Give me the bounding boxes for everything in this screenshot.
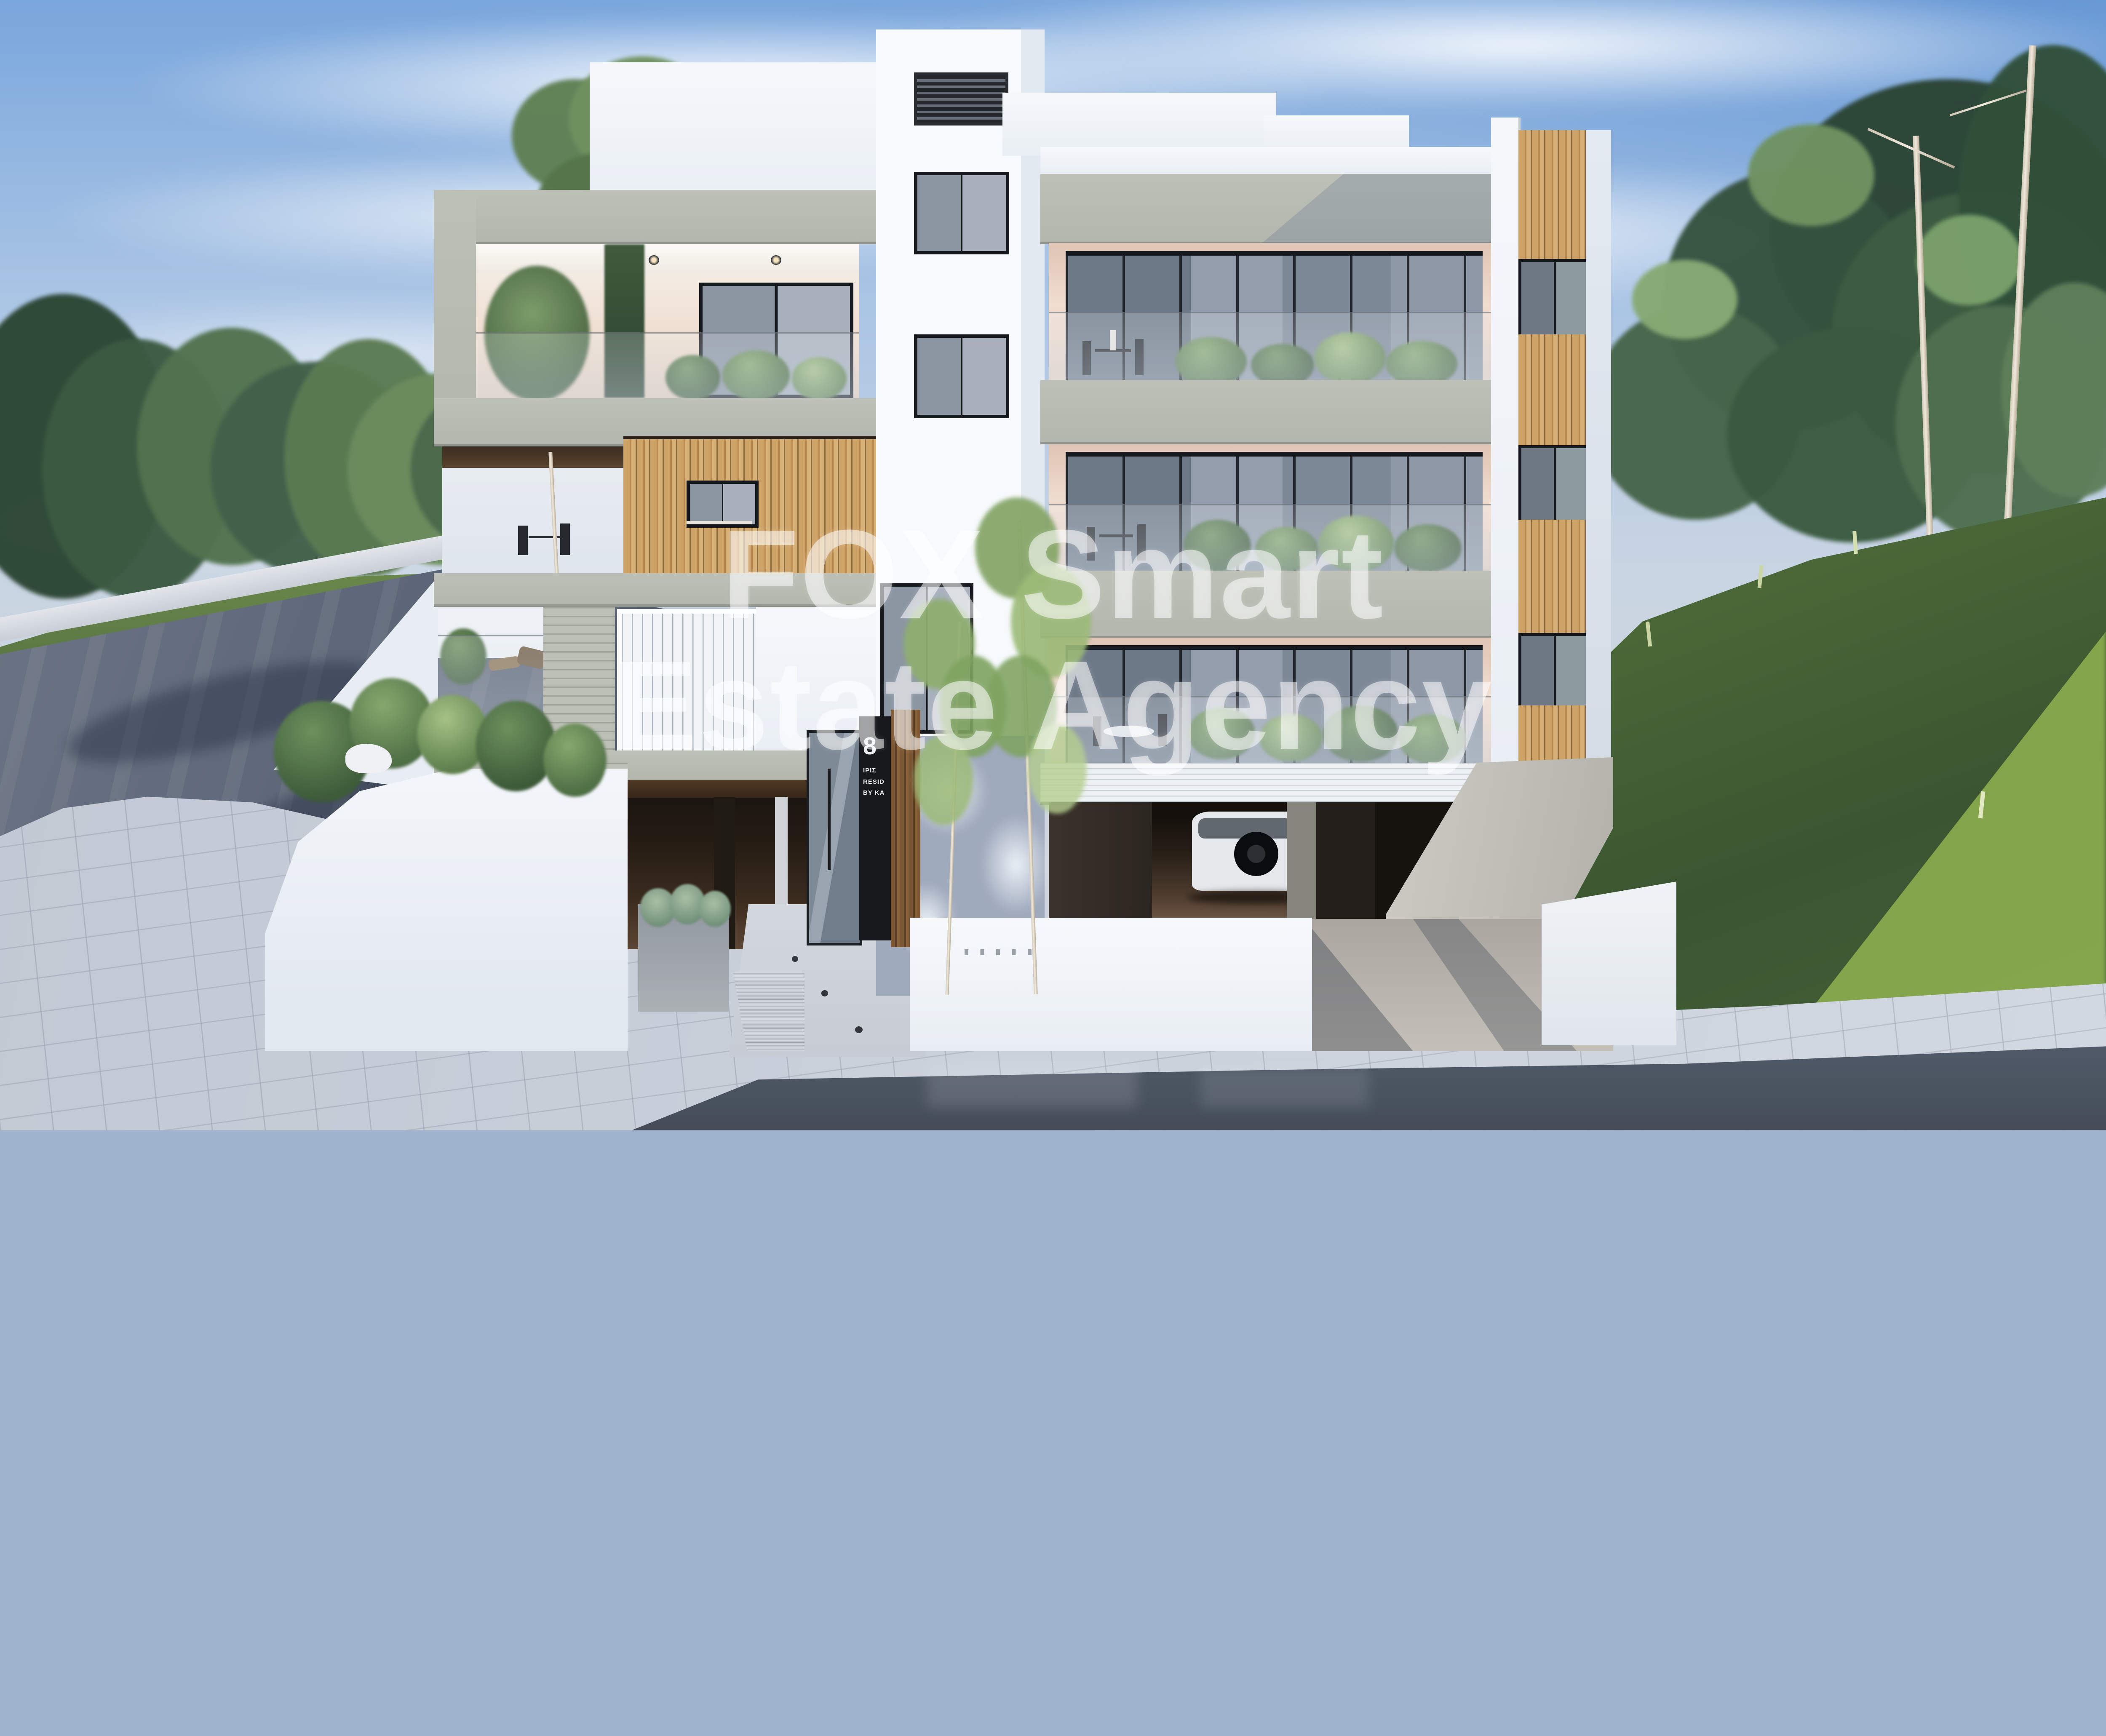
walkway-light: [792, 956, 798, 961]
front-planter-wall: [910, 918, 1312, 1051]
tower-window-mid: [914, 334, 1009, 418]
upper-white-volume: [590, 62, 897, 203]
reflection-on-road: [927, 1063, 1137, 1108]
white-retaining-wall: [1542, 881, 1676, 1045]
parapet-front: [1040, 147, 1499, 175]
silver-plant: [699, 891, 731, 927]
glass-balustrade: [1049, 312, 1493, 389]
watermark-line-2: Estate Agency: [0, 642, 2106, 768]
mid-terrace-soffit: [442, 446, 623, 468]
garage-column-concrete: [1287, 802, 1316, 919]
door-handle: [828, 769, 831, 871]
concrete-fascia-top: [434, 190, 880, 244]
wood-panel: [1518, 334, 1586, 445]
walkway-light: [855, 1026, 863, 1033]
wood-panel: [1518, 130, 1586, 259]
side-window: [1518, 259, 1592, 341]
garage-column-dark: [1316, 802, 1375, 919]
walkway-light: [821, 990, 828, 996]
watermark-line-1: FOX Smart: [0, 511, 2106, 637]
sign-line-3: BY KA: [863, 788, 885, 798]
light-dapple: [979, 814, 1053, 916]
sign-line-2: RESID: [863, 777, 885, 787]
tree-highlight: [1632, 260, 1737, 339]
tree-highlight: [1916, 215, 2022, 305]
reflection-on-road: [1200, 1068, 1369, 1108]
louver-vent: [914, 72, 1008, 126]
concrete-slab: [1040, 380, 1499, 444]
car-wheel: [1234, 832, 1278, 876]
tree-highlight: [1748, 124, 1874, 226]
roof-parapet: [1002, 93, 1276, 156]
tower-window-upper: [914, 172, 1009, 254]
architectural-render-scene: 8 ΙΡΙΣ RESID BY KA: [0, 0, 2106, 1130]
glass-balustrade: [476, 332, 859, 405]
garage-wall-left: [1049, 802, 1152, 919]
wall-signage-marks: [965, 949, 1036, 955]
